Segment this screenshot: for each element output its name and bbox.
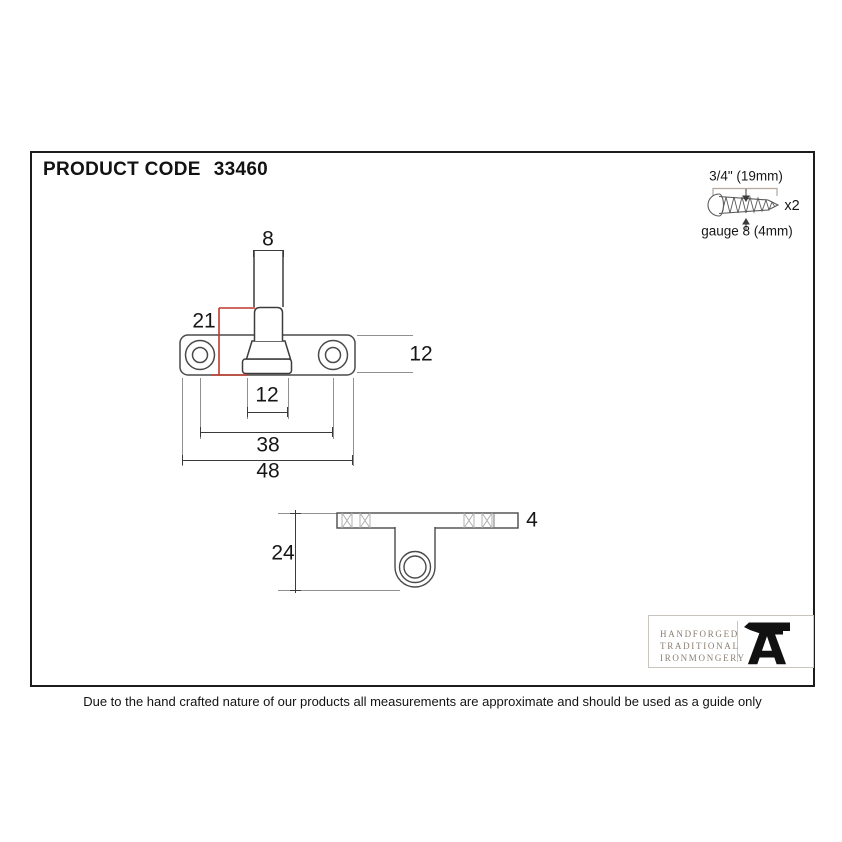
logo-line-3: IRONMONGERY <box>660 654 746 663</box>
product-code-label: PRODUCT CODE <box>43 159 201 181</box>
technical-drawing: A <box>0 0 842 842</box>
dim-plate-thickness: 4 <box>526 510 538 531</box>
dim-plate-depth: 12 <box>409 344 432 365</box>
dim-hole-spacing: 38 <box>256 435 279 456</box>
anvil-icon: A <box>744 618 790 676</box>
dim-base-width: 12 <box>255 385 278 406</box>
screw-quantity-label: x2 <box>784 199 799 214</box>
logo-line-1: HANDFORGED <box>660 630 739 639</box>
screw-gauge-label: gauge 8 (4mm) <box>701 224 793 238</box>
screw-length-label: 3/4" (19mm) <box>709 169 783 183</box>
logo-line-2: TRADITIONAL <box>660 642 740 651</box>
dim-pin-height: 21 <box>192 311 215 332</box>
product-code-value: 33460 <box>214 159 268 181</box>
top-view-drawing <box>180 250 413 466</box>
length-bracket <box>713 189 777 197</box>
dim-overall-height: 24 <box>271 543 294 564</box>
disclaimer-text: Due to the hand crafted nature of our pr… <box>31 694 814 709</box>
dim-pin-width: 8 <box>262 229 274 250</box>
dim-plate-width: 48 <box>256 461 279 482</box>
staple-pin <box>243 250 292 374</box>
side-view-drawing <box>278 510 518 593</box>
product-code: PRODUCT CODE 33460 <box>43 159 268 181</box>
side-pin-boss <box>395 527 435 587</box>
drawing-border <box>31 152 814 686</box>
